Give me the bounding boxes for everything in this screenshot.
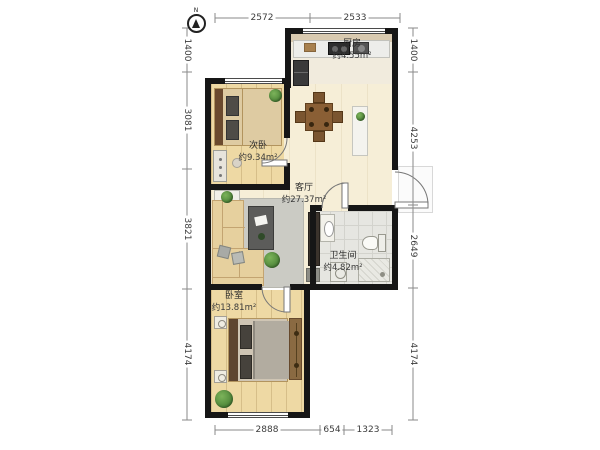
dimension-label: 2533 (342, 13, 369, 23)
sofa-front-line (213, 277, 263, 278)
knob (219, 158, 222, 161)
knob (294, 331, 299, 336)
place-setting (309, 122, 314, 127)
shower-area (358, 258, 390, 282)
pillow (240, 325, 252, 349)
blanket (253, 321, 289, 379)
dimension-label: 654 (321, 425, 342, 435)
room-name: 厨房 (332, 39, 371, 51)
dining-table (305, 103, 333, 131)
toilet (362, 236, 378, 250)
throw-pillow (231, 251, 245, 265)
place-setting (324, 107, 329, 112)
dimension-label: 1400 (182, 37, 192, 64)
window (225, 78, 282, 84)
dimension-label: 2888 (254, 425, 281, 435)
dresser (213, 150, 227, 182)
place-setting (309, 107, 314, 112)
wall-segment (392, 208, 398, 290)
nightstand (214, 370, 227, 383)
room-name: 卫生间 (323, 251, 362, 263)
wardrobe (289, 318, 302, 380)
room-area: 约4.82m² (323, 263, 362, 274)
nightstand (214, 316, 227, 329)
toilet-tank (378, 234, 386, 252)
room-label-living: 客厅 约27.37m² (282, 183, 327, 206)
plant (221, 191, 233, 203)
room-area: 约4.55m² (332, 51, 371, 62)
wall-segment (310, 205, 316, 290)
lamp (218, 320, 226, 328)
dimension-label: 3081 (182, 107, 192, 134)
fridge (293, 60, 309, 86)
plant (356, 112, 365, 121)
compass-ring (187, 14, 206, 33)
dimension-label: 1323 (355, 425, 382, 435)
entry-landing (398, 166, 433, 213)
wall-segment (392, 28, 398, 170)
fridge-door-line (294, 72, 308, 73)
shower-drain (380, 272, 385, 277)
pillow (226, 120, 239, 140)
wall-segment (306, 284, 398, 290)
knob (294, 363, 299, 368)
lamp (218, 374, 226, 382)
bed-master-bedroom (228, 318, 288, 382)
blanket-fold (242, 89, 243, 145)
wall-segment (205, 78, 211, 418)
room-name: 次卧 (238, 141, 277, 153)
floor-plan: N (0, 0, 600, 450)
plant (215, 390, 233, 408)
headboard (229, 319, 238, 381)
knob (219, 166, 222, 169)
dimension-label: 2572 (249, 13, 276, 23)
room-area: 约13.81m² (212, 303, 257, 314)
window (303, 28, 385, 34)
room-label-second-bedroom: 次卧 约9.34m² (238, 141, 277, 164)
room-area: 约9.34m² (238, 153, 277, 164)
wall-segment (304, 290, 310, 418)
room-label-kitchen: 厨房 约4.55m² (332, 39, 371, 62)
plant (264, 252, 280, 268)
sofa-cushion-line (223, 227, 245, 228)
magazine (254, 215, 268, 226)
table-plant (258, 233, 265, 240)
dining-chair (332, 111, 343, 123)
knob (219, 174, 222, 177)
pillow (240, 355, 252, 379)
bathroom-vanity (320, 214, 335, 242)
wall-segment (205, 284, 262, 290)
room-label-master-bedroom: 卧室 约13.81m² (212, 291, 257, 314)
wall-segment (284, 84, 290, 138)
room-label-bathroom: 卫生间 约4.82m² (323, 251, 362, 274)
wall-segment (205, 184, 290, 190)
dimension-label: 1400 (408, 37, 418, 64)
dimension-label: 4174 (408, 341, 418, 368)
north-arrow-icon (192, 19, 200, 28)
plant (269, 89, 282, 102)
dining-chair (313, 92, 325, 103)
dimension-label: 3821 (182, 216, 192, 243)
coffee-table (248, 206, 274, 250)
pillow (226, 96, 239, 116)
room-name: 卧室 (212, 291, 257, 303)
place-setting (324, 122, 329, 127)
dining-chair (313, 131, 325, 142)
north-label: N (185, 8, 207, 14)
dimension-label: 2649 (408, 233, 418, 260)
north-indicator: N (185, 8, 207, 33)
sink-basin (324, 221, 334, 237)
dimension-label: 4174 (182, 341, 192, 368)
window (228, 412, 288, 418)
headboard (215, 89, 223, 145)
room-name: 客厅 (282, 183, 327, 195)
cutting-board (304, 43, 316, 52)
room-area: 约27.37m² (282, 195, 327, 206)
dimension-label: 4253 (408, 125, 418, 152)
wall-segment (348, 205, 398, 211)
